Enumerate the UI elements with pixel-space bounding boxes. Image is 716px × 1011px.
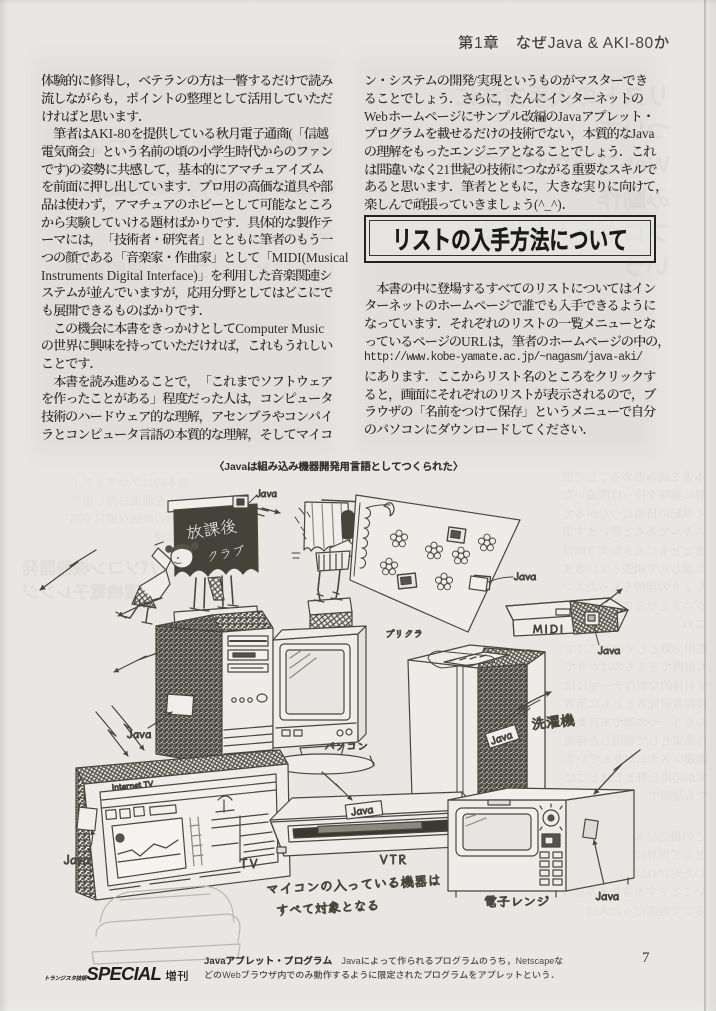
svg-text:Java: Java (597, 643, 620, 658)
svg-text:Java: Java (256, 485, 278, 500)
svg-text:MIDI: MIDI (533, 621, 565, 637)
svg-text:Java: Java (513, 569, 536, 584)
svg-text:すべて対象となる: すべて対象となる (275, 895, 380, 919)
svg-text:Java: Java (349, 802, 374, 820)
svg-text:パソコン: パソコン (324, 738, 368, 754)
svg-text:マイコンの入っている機器は: マイコンの入っている機器は (265, 869, 441, 898)
svg-text:Java: Java (595, 888, 619, 904)
svg-text:洗濯機: 洗濯機 (530, 709, 576, 734)
svg-text:電子レンジ: 電子レンジ (484, 891, 549, 910)
svg-text:プリクラ: プリクラ (385, 626, 423, 640)
svg-text:VTR: VTR (380, 851, 408, 868)
svg-text:TV: TV (240, 855, 260, 872)
svg-text:Java: Java (64, 851, 90, 868)
